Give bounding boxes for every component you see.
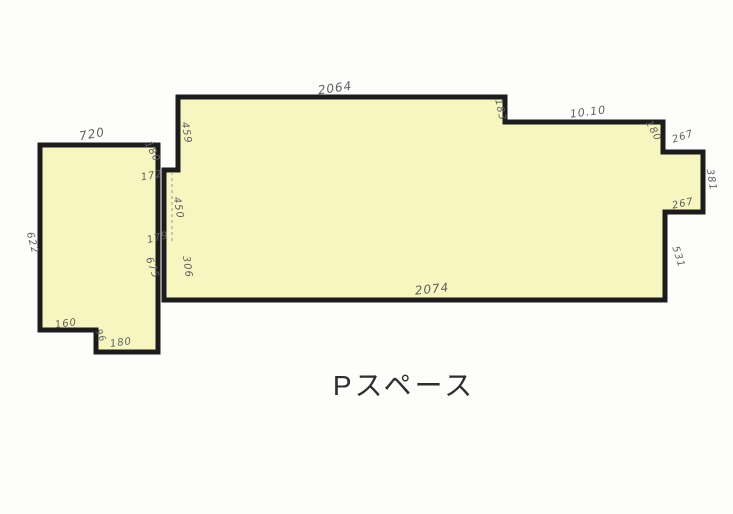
main-parking-area-shape <box>164 97 703 300</box>
floor-plan-drawing <box>0 0 733 514</box>
floor-plan-canvas: 206418310.101802673812675312074720622180… <box>0 0 733 514</box>
plan-title: Pスペース <box>333 364 475 404</box>
